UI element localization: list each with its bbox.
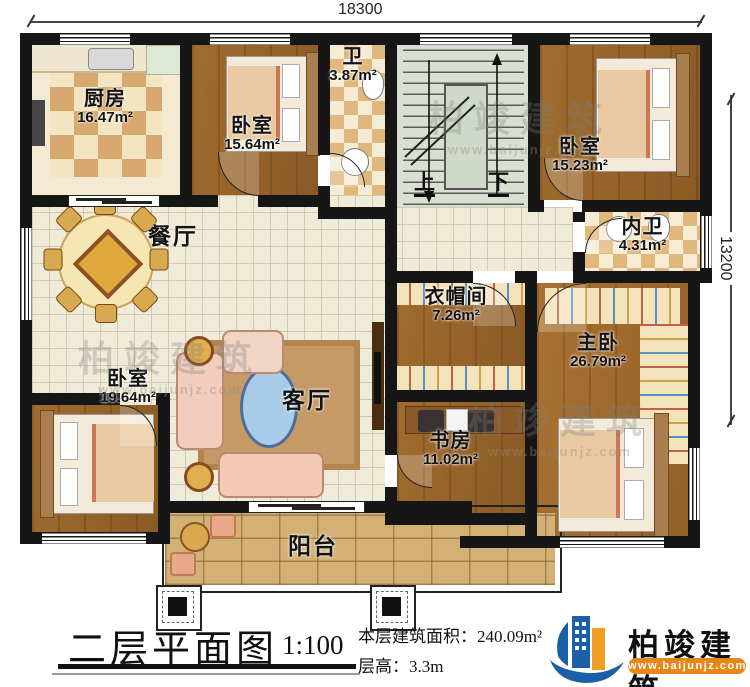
brand-website: www.baijunjz.com [628, 658, 746, 674]
wall [525, 513, 537, 548]
dining-chair [95, 304, 117, 323]
kitchen-sink [88, 48, 134, 70]
title-underline [58, 664, 356, 669]
room-label-cloakroom: 衣帽间 7.26m² [397, 286, 515, 325]
room-label-balcony: 阳台 [268, 534, 358, 560]
wall [192, 195, 218, 207]
balcony-cushion [210, 514, 236, 538]
tv [374, 352, 381, 404]
window [570, 33, 650, 45]
wall [180, 33, 192, 207]
room-label-bath: 卫 3.87m² [322, 46, 384, 85]
window [700, 216, 712, 268]
dimension-width-label: 18300 [334, 1, 387, 19]
wall [525, 271, 537, 513]
balcony-cushion [170, 552, 196, 576]
sliding-door [248, 501, 365, 513]
wall [385, 33, 397, 207]
sliding-door [68, 195, 160, 207]
dimension-height-label: 13200 [716, 232, 734, 285]
wall [158, 195, 192, 207]
room-label-master: 主卧 26.79m² [538, 332, 658, 371]
wall [397, 390, 525, 402]
cloakroom-closet-bottom [397, 366, 525, 390]
dimension-tick [727, 414, 736, 427]
wall [385, 271, 473, 283]
wall [585, 271, 700, 283]
armchair [222, 330, 284, 374]
stairs-up-label: 上 [414, 172, 435, 197]
fridge [146, 45, 182, 75]
sofa [218, 452, 324, 498]
wall [385, 513, 537, 525]
wall [20, 195, 68, 207]
desk-chair [468, 410, 494, 432]
balcony-table [180, 522, 210, 552]
stairs-down-label: 下 [488, 172, 509, 197]
wall [385, 487, 397, 513]
wall [528, 33, 540, 207]
room-label-living: 客厅 [262, 388, 352, 414]
armchair [176, 352, 224, 450]
brand-logo-icon [544, 610, 628, 686]
room-label-bedroom-top-right: 卧室 15.23m² [528, 136, 632, 175]
desk-chair [418, 410, 444, 432]
title-underline-thin [52, 673, 360, 675]
floor-plan-sheet: 厨房 16.47m² 卧室 15.64m² 卫 3.87m² 卧室 15.23m… [0, 0, 750, 687]
room-label-study: 书房 11.02m² [398, 430, 503, 469]
bed [558, 418, 668, 530]
side-table [184, 462, 214, 492]
window [42, 532, 146, 544]
room-label-kitchen: 厨房 16.47m² [55, 88, 155, 127]
wall [582, 200, 712, 212]
room-label-inner-bath: 内卫 4.31m² [590, 216, 695, 255]
window [210, 33, 290, 45]
dining-chair [44, 249, 63, 271]
room-label-bedroom-top: 卧室 15.64m² [196, 115, 308, 154]
window [420, 33, 512, 45]
wall [573, 212, 585, 222]
dining-chair [150, 249, 169, 271]
window [560, 536, 664, 548]
sheet-scale: 1:100 [282, 630, 344, 661]
wall [528, 200, 544, 212]
wall [573, 252, 585, 283]
window [60, 33, 130, 45]
side-table [184, 336, 214, 366]
hallway-floor [385, 207, 573, 271]
stove [32, 100, 45, 146]
desk-pad [446, 409, 468, 431]
dimension-line-top [30, 21, 702, 23]
room-label-bedroom-bottom-left: 卧室 19.64m² [78, 368, 178, 407]
window [688, 448, 700, 520]
room-label-dining: 餐厅 [128, 224, 218, 250]
wall [158, 393, 170, 544]
brand-name: 柏竣建筑 [628, 620, 750, 687]
floor-area-text: 本层建筑面积：240.09m² [358, 622, 542, 647]
floor-height-text: 层高：3.3m [358, 652, 443, 677]
window [20, 228, 32, 320]
wall [385, 207, 397, 455]
